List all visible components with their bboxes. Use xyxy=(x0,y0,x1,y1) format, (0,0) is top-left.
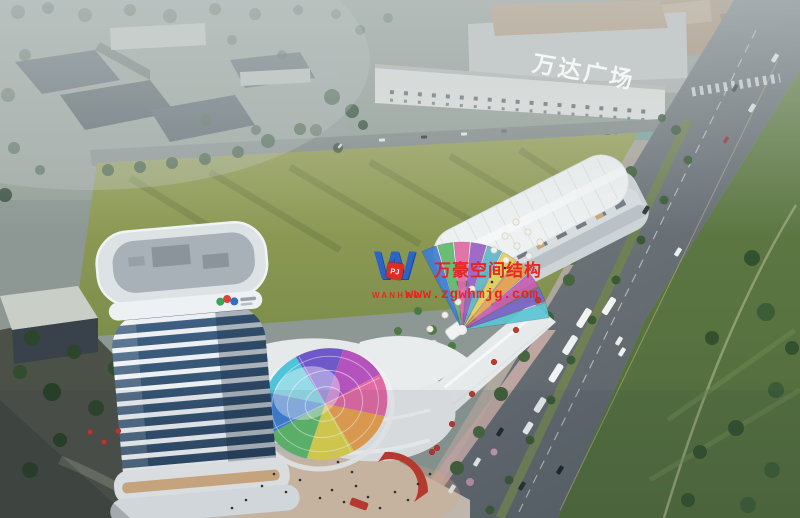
aerial-rendering-scene: 万达广场 W PJ WANHAO 万豪空间结构 www.zgwhmjg.com xyxy=(0,0,800,518)
white-umbrella xyxy=(514,243,520,249)
red-umbrella xyxy=(491,359,497,365)
tree xyxy=(705,331,719,345)
tree xyxy=(757,303,775,321)
watermark: W PJ WANHAO 万豪空间结构 www.zgwhmjg.com xyxy=(372,250,582,312)
tree xyxy=(785,341,799,355)
white-umbrella xyxy=(442,312,448,318)
tree xyxy=(394,327,402,335)
tree xyxy=(13,365,27,379)
tree xyxy=(637,236,646,245)
white-umbrella xyxy=(537,239,543,245)
tree xyxy=(612,276,621,285)
watermark-url: www.zgwhmjg.com xyxy=(405,287,542,303)
tree xyxy=(588,316,597,325)
fan-hub xyxy=(457,325,467,335)
dusk-tint xyxy=(0,390,800,518)
roof-equipment xyxy=(202,253,229,269)
logo-red-badge: PJ xyxy=(386,262,404,280)
tree xyxy=(567,356,576,365)
white-umbrella xyxy=(427,326,433,332)
tree xyxy=(744,250,760,266)
red-umbrella xyxy=(513,327,519,333)
watermark-texts: 万豪空间结构 www.zgwhmjg.com xyxy=(434,256,542,303)
roof-equipment xyxy=(128,256,145,266)
roof-equipment xyxy=(151,244,191,267)
watermark-company-name: 万豪空间结构 xyxy=(434,256,542,281)
tree xyxy=(67,345,81,359)
tree xyxy=(24,330,40,346)
